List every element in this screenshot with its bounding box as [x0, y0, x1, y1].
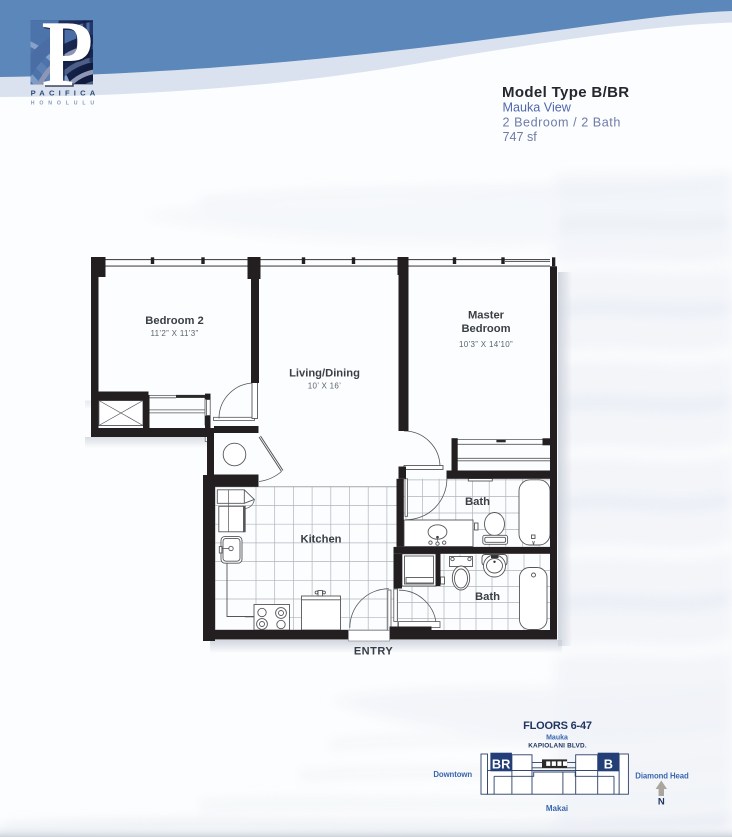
svg-text:Bedroom 2: Bedroom 2 [145, 315, 203, 327]
svg-text:Makai: Makai [546, 804, 568, 813]
svg-text:ENTRY: ENTRY [354, 646, 394, 658]
svg-text:Bath: Bath [475, 591, 500, 603]
svg-text:FLOORS 6-47: FLOORS 6-47 [523, 720, 592, 732]
svg-text:BR: BR [492, 756, 510, 771]
svg-text:10’3” X 14’10”: 10’3” X 14’10” [459, 340, 513, 349]
svg-text:Kitchen: Kitchen [300, 534, 341, 546]
svg-text:Downtown: Downtown [433, 770, 472, 779]
svg-text:11’2” X 11’3”: 11’2” X 11’3” [150, 329, 198, 338]
svg-text:Bedroom: Bedroom [461, 323, 510, 335]
svg-text:Living/Dining: Living/Dining [289, 368, 360, 380]
svg-text:KAPIOLANI BLVD.: KAPIOLANI BLVD. [528, 743, 587, 750]
svg-text:Diamond Head: Diamond Head [635, 772, 689, 781]
svg-text:PACIFICA: PACIFICA [31, 89, 100, 98]
svg-text:Master: Master [468, 310, 505, 322]
svg-text:N: N [658, 796, 665, 807]
svg-text:2 Bedroom / 2 Bath: 2 Bedroom / 2 Bath [503, 116, 621, 130]
svg-text:Model Type B/BR: Model Type B/BR [502, 84, 629, 101]
svg-text:747 sf: 747 sf [503, 130, 538, 144]
svg-text:Mauka: Mauka [546, 734, 568, 741]
svg-text:Bath: Bath [465, 496, 490, 508]
svg-text:HONOLULU: HONOLULU [31, 101, 99, 107]
svg-text:10’ X 16’: 10’ X 16’ [308, 382, 342, 391]
svg-text:B: B [604, 756, 613, 771]
svg-text:Mauka View: Mauka View [503, 101, 572, 115]
